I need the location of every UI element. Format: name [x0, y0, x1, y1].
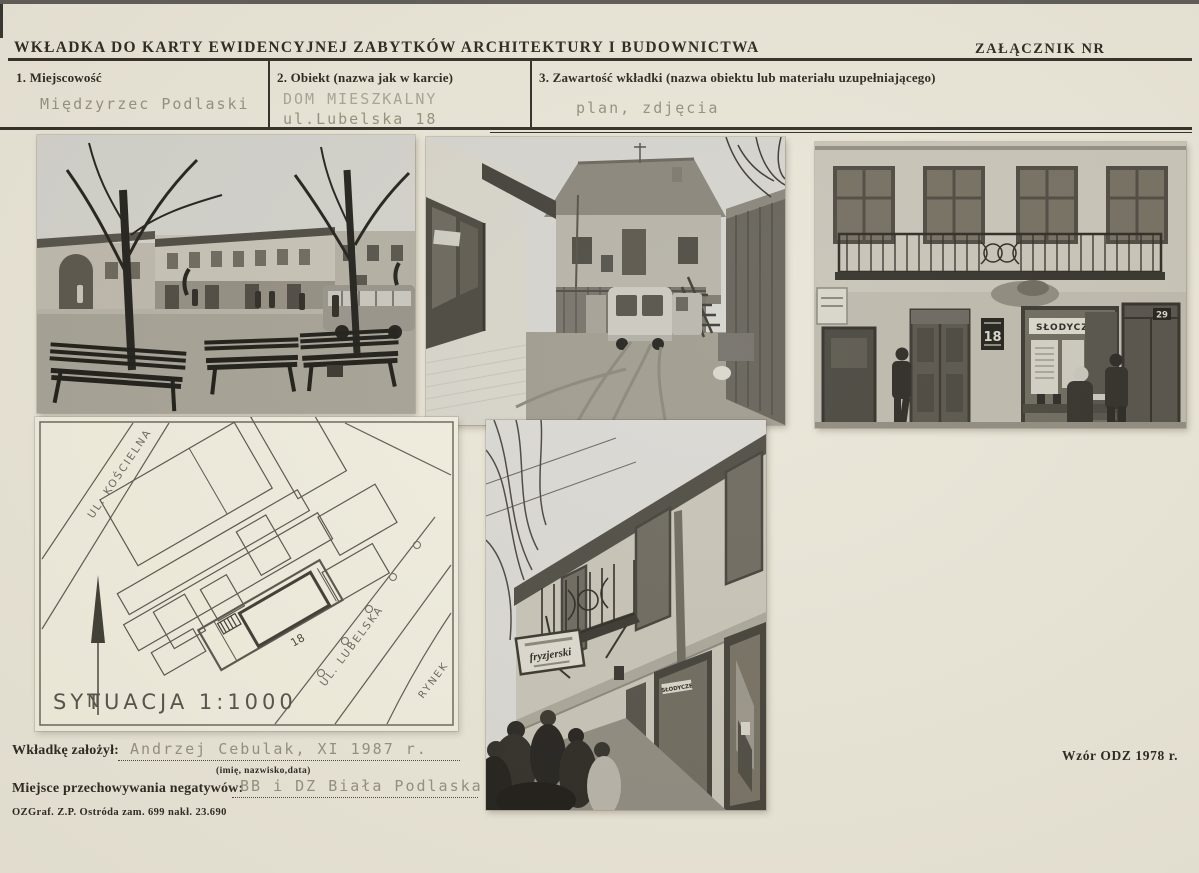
field-divider-1	[268, 61, 270, 128]
situation-plan: 18 N UL. KOŚCIELNA UL. LUBELSKA RYNEK SY…	[35, 417, 458, 731]
map-scale-label: SYTUACJA 1:1000	[53, 690, 297, 714]
field-contents-value: plan, zdjęcia	[576, 99, 719, 117]
created-by-label: Wkładkę założył:	[12, 743, 119, 759]
negatives-value: BB i DZ Biała Podlaska	[240, 777, 483, 795]
field-divider-2	[530, 61, 532, 128]
photo-street-oblique: SŁODYCZE fryzjerski	[486, 420, 766, 810]
field-contents-label: 3. Zawartość wkładki (nazwa obiektu lub …	[539, 70, 936, 86]
photo-town-square	[37, 135, 415, 413]
situation-plan-drawing: 18 N UL. KOŚCIELNA UL. LUBELSKA RYNEK SY…	[35, 417, 458, 731]
created-by-value: Andrzej Cebulak, XI 1987 r.	[130, 740, 428, 758]
print-info: OZGraf. Z.P. Ostróda zam. 699 nakł. 23.6…	[12, 807, 227, 818]
title-rule	[8, 58, 1192, 61]
form-bottom-rule-2	[490, 132, 1192, 133]
field-object-value-2: ul.Lubelska 18	[283, 110, 437, 128]
scanned-record-card: WKŁADKA DO KARTY EWIDENCYJNEJ ZABYTKÓW A…	[0, 0, 1199, 873]
created-by-line	[118, 760, 460, 761]
negatives-label: Miejsce przechowywania negatywów:	[12, 781, 243, 797]
attachment-number-label: ZAŁĄCZNIK NR	[975, 41, 1105, 58]
waste-bin	[327, 365, 343, 377]
courtyard-scene	[426, 137, 785, 425]
form-code: Wzór ODZ 1978 r.	[1062, 748, 1178, 764]
town-square-scene	[37, 135, 415, 413]
field-object-value-1: DOM MIESZKALNY	[283, 90, 437, 108]
field-locality-label: 1. Miejscowość	[16, 70, 102, 86]
created-by-hint: (imię, nazwisko,data)	[216, 766, 311, 776]
facade-scene: 18 SŁODYCZE	[815, 142, 1186, 428]
scan-edge	[0, 0, 1199, 4]
negatives-line	[232, 797, 478, 798]
photo-courtyard	[426, 137, 785, 425]
street-oblique-scene: SŁODYCZE fryzjerski	[486, 420, 766, 810]
photo-facade: 18 SŁODYCZE	[815, 142, 1186, 428]
house-number-plaque: 18	[981, 318, 1004, 350]
door-number-text: 29	[1156, 311, 1168, 321]
form-bottom-rule	[0, 127, 1192, 130]
field-object-label: 2. Obiekt (nazwa jak w karcie)	[277, 70, 453, 86]
page-title: WKŁADKA DO KARTY EWIDENCYJNEJ ZABYTKÓW A…	[14, 39, 760, 57]
right-door: 29	[1123, 304, 1179, 428]
scan-edge-mark	[0, 4, 3, 38]
house-number-text: 18	[983, 330, 1001, 345]
field-locality-value: Międzyrzec Podlaski	[40, 95, 250, 113]
